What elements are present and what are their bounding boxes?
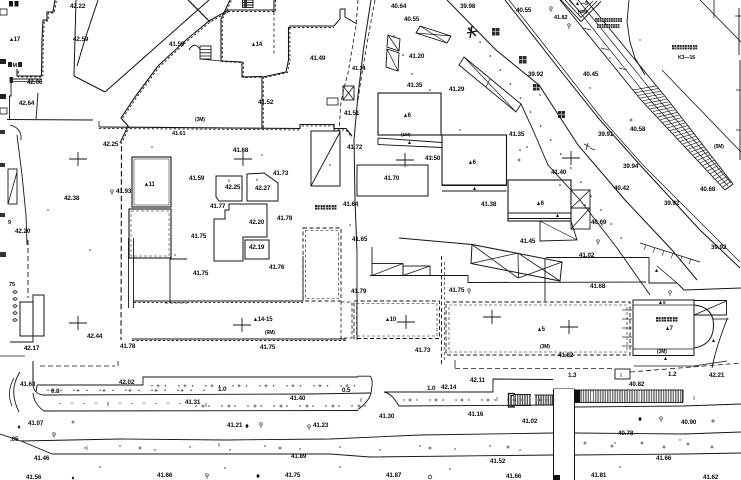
- svg-text:41.72: 41.72: [347, 144, 363, 151]
- svg-text:II: II: [256, 178, 258, 182]
- svg-text:1.0: 1.0: [427, 385, 436, 392]
- svg-text:42.17: 42.17: [24, 345, 40, 352]
- svg-text:41.78: 41.78: [120, 343, 136, 350]
- svg-text:41.51: 41.51: [344, 110, 360, 117]
- svg-text:41.93: 41.93: [116, 188, 132, 195]
- svg-text:41.21: 41.21: [227, 422, 243, 429]
- svg-text:41.07: 41.07: [28, 420, 44, 427]
- svg-text:41.34: 41.34: [352, 66, 366, 72]
- svg-text:40.55: 40.55: [516, 7, 532, 14]
- svg-text:(3M): (3M): [540, 344, 550, 350]
- svg-text:41.02: 41.02: [579, 252, 595, 259]
- svg-text:41.62: 41.62: [703, 474, 719, 480]
- svg-text:39.91: 39.91: [598, 131, 614, 138]
- svg-text:14-15: 14-15: [258, 317, 274, 323]
- svg-text:II: II: [228, 179, 230, 183]
- svg-text:41.23: 41.23: [313, 422, 329, 429]
- svg-text:41.45: 41.45: [520, 238, 536, 245]
- svg-text:14: 14: [256, 42, 263, 48]
- svg-text:41.31: 41.31: [185, 399, 201, 406]
- svg-text:41.30: 41.30: [379, 413, 395, 420]
- svg-text:41.40: 41.40: [551, 169, 567, 176]
- svg-text:41.68: 41.68: [233, 147, 249, 154]
- svg-text:41.35: 41.35: [407, 82, 423, 89]
- svg-text:41.40: 41.40: [290, 395, 306, 402]
- svg-text:(5M): (5M): [714, 144, 724, 150]
- svg-text:42.20: 42.20: [249, 219, 265, 226]
- svg-text:39.94: 39.94: [623, 163, 639, 170]
- svg-text:42.19: 42.19: [249, 244, 265, 251]
- svg-text:41.87: 41.87: [386, 472, 402, 479]
- svg-text:41.29: 41.29: [449, 86, 465, 93]
- svg-text:40.78: 40.78: [618, 430, 634, 437]
- svg-text:9: 9: [8, 220, 11, 226]
- svg-text:41.50: 41.50: [425, 155, 441, 162]
- svg-text:42.64: 42.64: [19, 100, 35, 107]
- svg-text:41.16: 41.16: [468, 411, 484, 418]
- svg-text:41.70: 41.70: [384, 175, 400, 182]
- svg-text:41.73: 41.73: [415, 347, 431, 354]
- svg-text:41.66: 41.66: [157, 472, 173, 479]
- svg-text:40.55: 40.55: [404, 16, 420, 23]
- svg-text:42.21: 42.21: [709, 372, 725, 379]
- svg-text:42.38: 42.38: [64, 195, 80, 202]
- svg-text:41.75: 41.75: [260, 344, 276, 351]
- svg-text:41.75: 41.75: [449, 287, 465, 294]
- svg-text:17: 17: [14, 37, 21, 43]
- svg-text:41.75: 41.75: [285, 472, 301, 479]
- svg-text:42.25: 42.25: [103, 141, 119, 148]
- svg-text:41.59: 41.59: [169, 41, 185, 48]
- svg-text:40.82: 40.82: [629, 381, 645, 388]
- svg-text:11: 11: [149, 182, 156, 188]
- svg-text:40.42: 40.42: [614, 185, 630, 192]
- svg-text:39.98: 39.98: [460, 3, 476, 10]
- svg-text:75: 75: [9, 282, 15, 288]
- svg-text:(1M): (1M): [401, 132, 411, 138]
- svg-text:42.02: 42.02: [119, 379, 135, 386]
- svg-text:0.5: 0.5: [342, 387, 351, 394]
- svg-text:39.92: 39.92: [528, 71, 544, 78]
- svg-text:41.02: 41.02: [522, 418, 538, 425]
- svg-text:41.75: 41.75: [193, 270, 209, 277]
- svg-text:0.8: 0.8: [51, 388, 60, 395]
- svg-text:41.68: 41.68: [590, 283, 606, 290]
- svg-text:39.92: 39.92: [664, 200, 680, 207]
- svg-text:41.46: 41.46: [34, 455, 50, 462]
- svg-text:41.82: 41.82: [558, 352, 574, 359]
- svg-text:41.59: 41.59: [189, 175, 205, 182]
- svg-text:41.79: 41.79: [351, 288, 367, 295]
- svg-text:41.66: 41.66: [506, 473, 522, 480]
- svg-text:(3M): (3M): [657, 349, 667, 355]
- svg-text:42.14: 42.14: [441, 384, 457, 391]
- svg-text:41.73: 41.73: [273, 170, 289, 177]
- svg-text:41.65: 41.65: [352, 236, 368, 243]
- svg-text:40.58: 40.58: [630, 126, 646, 133]
- svg-text:41.76: 41.76: [269, 264, 285, 271]
- svg-text:42.20: 42.20: [15, 228, 31, 235]
- svg-text:K3—16: K3—16: [678, 55, 695, 61]
- svg-text:41.66: 41.66: [656, 455, 672, 462]
- svg-text:42.27: 42.27: [255, 185, 271, 192]
- svg-text:42.44: 42.44: [87, 333, 103, 340]
- svg-text:1.2: 1.2: [668, 371, 677, 378]
- svg-text:10: 10: [390, 317, 397, 323]
- svg-text:41.20: 41.20: [409, 53, 425, 60]
- svg-text:41.61: 41.61: [172, 131, 186, 137]
- svg-text:40.64: 40.64: [391, 3, 407, 10]
- svg-text:41.89: 41.89: [291, 453, 307, 460]
- svg-text:41.78: 41.78: [277, 215, 293, 222]
- svg-text:41.52: 41.52: [490, 458, 506, 465]
- svg-text:40.90: 40.90: [681, 419, 697, 426]
- svg-text:1.0: 1.0: [218, 386, 227, 393]
- svg-text:41.81: 41.81: [591, 472, 607, 479]
- svg-text:41.64: 41.64: [343, 201, 359, 208]
- svg-text:M: M: [13, 63, 18, 69]
- svg-text:42.11: 42.11: [470, 377, 486, 384]
- svg-text:41.82: 41.82: [554, 15, 568, 21]
- svg-text:41.75: 41.75: [191, 233, 207, 240]
- svg-text:41.77: 41.77: [210, 203, 226, 210]
- svg-text:39.92: 39.92: [711, 244, 727, 251]
- svg-text:40.68: 40.68: [700, 186, 716, 193]
- svg-text:—5: —5: [580, 1, 588, 7]
- svg-text:41.49: 41.49: [310, 55, 326, 62]
- svg-text:40.45: 40.45: [583, 71, 599, 78]
- svg-text:42.25: 42.25: [225, 184, 241, 191]
- svg-text:41.56: 41.56: [26, 474, 42, 480]
- svg-text:41.52: 41.52: [258, 99, 274, 106]
- svg-text:1.3: 1.3: [568, 372, 577, 379]
- svg-text:(6M): (6M): [265, 330, 275, 336]
- svg-text:42.06: 42.06: [27, 79, 43, 86]
- svg-text:41.38: 41.38: [481, 201, 497, 208]
- svg-text:(3M): (3M): [195, 117, 205, 123]
- svg-text:41.35: 41.35: [509, 131, 525, 138]
- svg-text:(7M): (7M): [578, 9, 588, 14]
- svg-text:42.22: 42.22: [70, 3, 86, 10]
